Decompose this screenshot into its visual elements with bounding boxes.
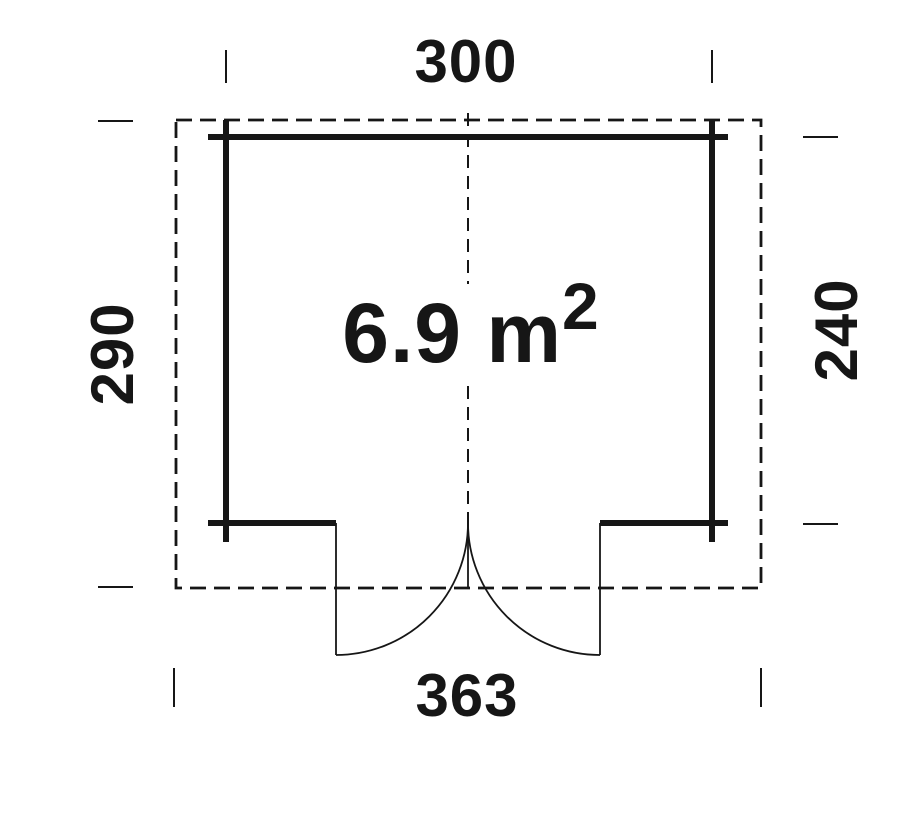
floor-plan-page: 300 290 240 363 6.9 m2	[0, 0, 900, 819]
door-swing-arc-left	[336, 523, 468, 655]
dim-label-left-height: 290	[79, 302, 146, 405]
area-superscript: 2	[562, 269, 600, 343]
dim-label-bottom-width: 363	[415, 662, 518, 729]
floor-plan-drawing: 300 290 240 363 6.9 m2	[0, 0, 900, 819]
dim-label-right-height: 240	[803, 278, 870, 381]
area-label: 6.9 m2	[342, 269, 600, 380]
area-value: 6.9 m	[342, 286, 562, 380]
dim-label-top-width: 300	[414, 28, 517, 95]
